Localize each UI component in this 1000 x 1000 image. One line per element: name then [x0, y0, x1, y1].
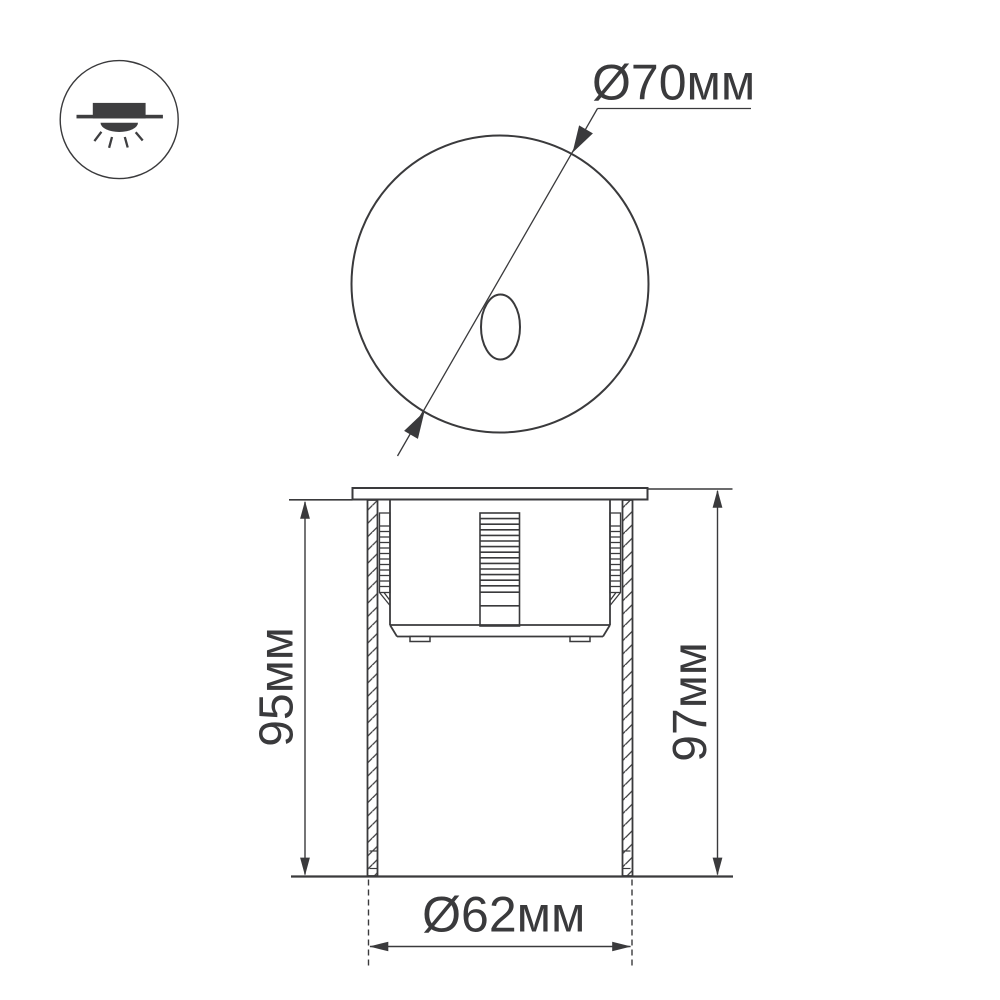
- svg-text:97мм: 97мм: [664, 642, 717, 761]
- svg-text:Ø70мм: Ø70мм: [592, 55, 755, 111]
- svg-text:Ø62мм: Ø62мм: [422, 887, 585, 943]
- svg-text:95мм: 95мм: [251, 627, 304, 746]
